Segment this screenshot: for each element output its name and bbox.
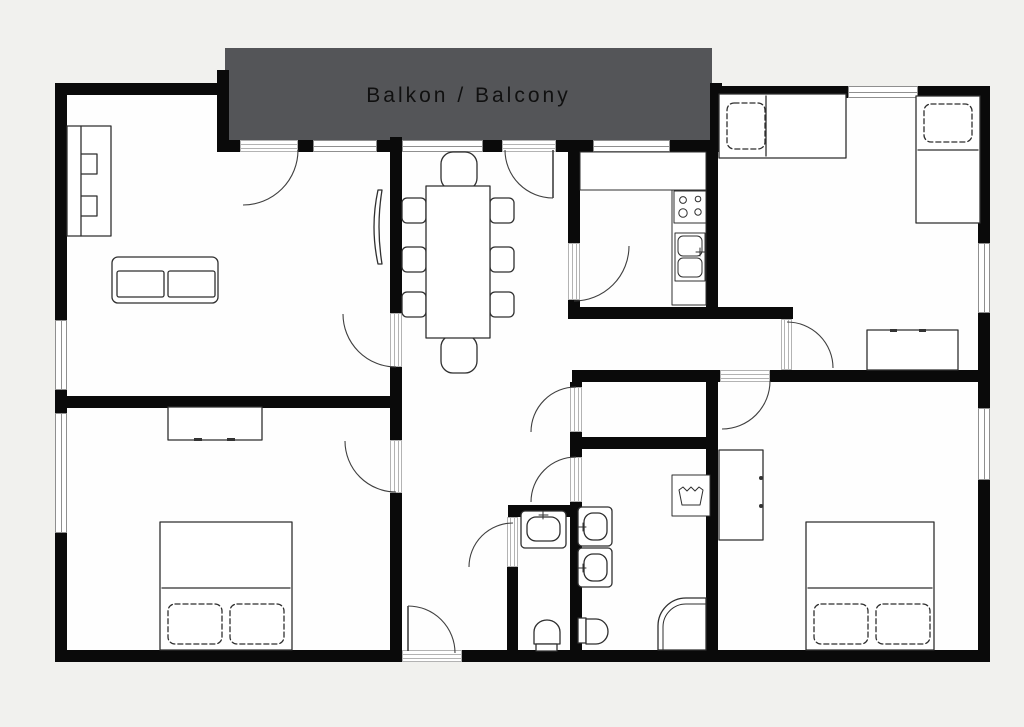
- washing-machine: [672, 475, 710, 516]
- double-bed-right: [806, 522, 934, 650]
- wc-toilet: [534, 620, 560, 651]
- wardrobe: [719, 450, 763, 540]
- kitchen-sink: [675, 233, 706, 281]
- tv: [374, 190, 382, 264]
- bathroom-toilet: [578, 618, 608, 644]
- wall-unit: [67, 126, 111, 236]
- door-arcs: [243, 150, 833, 653]
- kitchen-counter: [580, 152, 706, 305]
- wc-sink: [521, 511, 566, 548]
- sofa: [112, 257, 218, 303]
- bathroom-sink-2: [578, 548, 612, 587]
- stove: [674, 191, 706, 223]
- single-bed-1: [719, 94, 846, 158]
- shower: [658, 598, 706, 650]
- single-bed-2: [916, 96, 980, 223]
- sideboard: [867, 329, 958, 370]
- bathroom-sink-1: [578, 507, 612, 546]
- dresser: [168, 407, 262, 441]
- double-bed-left: [160, 522, 292, 650]
- symbols-layer: [0, 0, 1024, 727]
- floor-plan: Balkon / Balcony: [0, 0, 1024, 727]
- dining-set: [402, 152, 514, 373]
